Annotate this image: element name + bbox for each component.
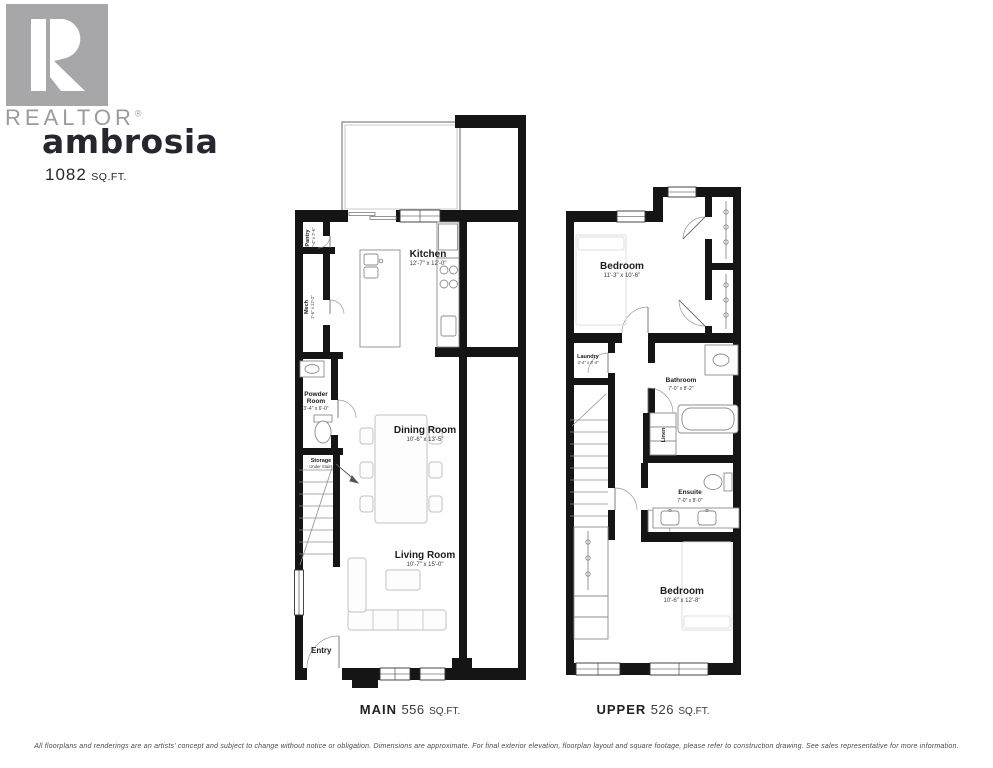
powder-sink [300, 361, 324, 377]
upper-stairs [570, 394, 608, 516]
living-dims: 10'-7" x 15'-0" [407, 562, 444, 568]
entry-label: Entry [311, 646, 332, 655]
kitchen-counter [437, 222, 459, 347]
ensuite-dims: 7'-0" x 8'-0" [677, 498, 702, 504]
powder-dims: 3'-4" x 6'-0" [303, 406, 328, 412]
main-caption-area: 556 [401, 702, 424, 717]
main-caption-unit: SQ.FT. [429, 706, 460, 717]
registered-mark: ® [135, 109, 142, 119]
upper-floor-caption: UPPER 526 SQ.FT. [560, 701, 746, 719]
kitchen-island [360, 250, 400, 347]
disclaimer-text: All floorplans and renderings are an art… [0, 743, 993, 750]
bedroom1-label: Bedroom [600, 261, 644, 272]
upper-caption-area: 526 [651, 702, 674, 717]
bedroom1-bed [576, 235, 626, 325]
bathroom-tub [678, 405, 738, 433]
laundry-dims: 3'-4" x 3'-4" [577, 360, 599, 365]
realtor-r-icon [6, 4, 108, 106]
floorplan-sheet: REALTOR® ambrosia 1082 SQ.FT. [0, 0, 993, 768]
plan-title: ambrosia [42, 122, 218, 161]
upper-floorplan: Bedroom 11'-3" x 10'-6" Laundry 3'-4" x … [560, 180, 746, 680]
kitchen-dims: 12'-7" x 12'-0" [410, 261, 447, 267]
dining-label: Dining Room [394, 425, 456, 436]
main-floor-caption: MAIN 556 SQ.FT. [290, 701, 530, 719]
dining-dims: 10'-6" x 13'-5" [407, 437, 444, 443]
powder-label-1: Powder [304, 391, 328, 398]
upper-caption-unit: SQ.FT. [678, 706, 709, 717]
kitchen-label: Kitchen [410, 249, 447, 260]
living-label: Living Room [395, 550, 456, 561]
mech-dims: 2'-6" x 12'-2" [310, 295, 315, 319]
total-area-value: 1082 [45, 165, 87, 184]
realtor-logo [6, 4, 108, 106]
upper-caption-name: UPPER [596, 702, 646, 717]
total-area: 1082 SQ.FT. [45, 165, 127, 185]
main-stairs [299, 464, 358, 565]
main-floorplan: Kitchen 12'-7" x 12'-0" Dining Room 10'-… [290, 110, 530, 694]
pantry-dims: 2'-4" x 2'-6" [311, 227, 316, 249]
deck [342, 122, 460, 212]
bathroom-vanity [705, 345, 738, 375]
ensuite-toilet [704, 473, 732, 491]
ensuite-label: Ensuite [678, 489, 702, 496]
bedroom2-closet [574, 527, 608, 639]
powder-toilet [314, 415, 332, 443]
storage-label-2: Under Stairs [309, 464, 332, 469]
main-caption-name: MAIN [360, 702, 397, 717]
bathroom-label: Bathroom [666, 377, 697, 384]
living-furniture [348, 558, 446, 630]
main-walls [295, 115, 526, 688]
bedroom1-dims: 11'-3" x 10'-6" [604, 273, 640, 279]
total-area-unit: SQ.FT. [91, 171, 127, 183]
bedroom2-dims: 10'-6" x 12'-8" [664, 598, 701, 604]
ensuite-vanity [653, 508, 739, 528]
linen-label: Linen [661, 427, 667, 442]
bedroom2-label: Bedroom [660, 586, 704, 597]
powder-label-2: Room [307, 398, 326, 405]
bathroom-dims: 7'-0" x 8'-2" [668, 386, 693, 392]
